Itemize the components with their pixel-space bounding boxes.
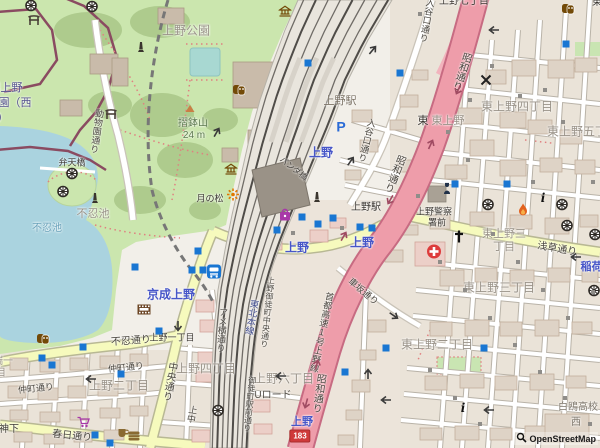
map-label-kurumazaka-dori: 車坂通り [346,277,380,307]
oneway-arrow-icon [363,39,386,61]
entrance-dot [591,180,595,184]
monument-icon [89,191,101,209]
entrance-dot [438,260,442,264]
subway-entrance-icon [397,70,404,77]
map-label-nakacho-dori-1: 仲町通り [108,361,145,374]
entrance-dot [563,396,567,400]
dharma-wheel-icon [25,0,38,17]
entrance-dot [513,343,517,347]
subway-entrance-icon [330,215,337,222]
map-label-ueno-police-l1: 上野警察 [416,207,452,216]
entrance-dot [561,120,565,124]
expressway-arrow-icon [378,189,401,210]
subway-entrance-icon [132,264,139,271]
map-label-ueno-okachimachi-chuo-dori: 上野御徒町中央通り [259,276,275,348]
oneway-arrow-icon [273,366,287,384]
map-label-inaricho: 稲荷町 [581,262,600,274]
subway-entrance-icon [39,355,46,362]
oneway-arrow-icon [481,400,495,418]
viewpoint-icon [227,188,240,206]
entrance-dot [468,98,472,102]
peak-icon [185,100,196,118]
oneway-arrow-icon [378,390,392,408]
map-label-iriyaguchi-dori-1: 入谷口通り [356,117,376,163]
subway-entrance-icon [357,224,364,231]
map-canvas[interactable]: 上野公園摺鉢山24 m月の松弁天橋不忍池不忍池賜上野園（西）動物園通り上野駅上野… [0,0,600,448]
map-label-tenjinshita: 天神下 [0,425,19,436]
map-label-panda-bashi: パンダ橋 [278,156,309,183]
entrance-dot [418,12,422,16]
map-label-corner-higashi: 東 [592,0,600,8]
oneway-arrow-icon [568,247,582,265]
subway-entrance-icon [195,248,202,255]
subway-entrance-icon [315,221,322,228]
map-label-ueno-exit: 上野 [291,417,313,429]
entrance-dot [531,180,535,184]
subway-entrance-icon [118,371,125,378]
entrance-dot [453,396,457,400]
entrance-dot [541,288,545,292]
entrance-dot [543,88,547,92]
map-label-nakacho-dori-2: 仲町通り [18,382,55,395]
subway-entrance-icon [305,60,312,67]
map-label-ueno-2: 上野二丁目 [89,380,149,393]
map-label-higashi-ueno-4: 東上野四丁目 [481,101,553,114]
subway-entrance-icon [481,345,488,352]
dharma-wheel-icon [482,198,495,216]
bus-station-icon [207,264,222,284]
fast-food-icon [128,428,141,446]
map-label-higashi-ueno: 東上野 [432,116,465,128]
entrance-dot [566,316,570,320]
map-features-layer: 上野公園摺鉢山24 m月の松弁天橋不忍池不忍池賜上野園（西）動物園通り上野駅上野… [0,0,600,448]
subway-entrance-icon [299,214,306,221]
entrance-dot [466,158,470,162]
dharma-wheel-icon [66,167,79,185]
svg-text:i: i [541,191,546,204]
entrance-dot [488,316,492,320]
entrance-dot [291,231,295,235]
entrance-dot [538,370,542,374]
map-label-shinobazu-pond-water: 不忍池 [32,224,62,235]
monument-icon [135,40,147,58]
information-icon: i [539,191,547,209]
statue-icon [311,190,323,208]
entrance-dot [446,130,450,134]
dharma-wheel-icon [556,198,569,216]
map-label-ueno-sta-building: 上野駅 [324,96,357,108]
map-label-ueno-jr: 上野 [309,147,333,160]
map-label-uechun: 上中 [185,404,197,423]
map-label-hakuo-hs: 白鴎高校 [558,403,598,414]
parking-icon: P [335,119,347,139]
map-label-zoo-name-line1: 賜上野 [0,83,23,95]
map-label-zoo-name-line3: ） [0,113,9,125]
subway-entrance-icon [452,181,459,188]
entrance-dot [516,260,520,264]
oneway-arrow-icon [83,369,97,387]
subway-entrance-icon [92,432,99,439]
map-label-tohoku-main-line: 東北本線 [243,298,259,335]
entrance-dot [463,288,467,292]
subway-entrance-icon [200,267,207,274]
map-label-higashi-ueno-3-l1: 東上野三 [482,229,526,241]
dharma-wheel-icon [212,404,225,422]
map-label-iriyaguchi-dori-2: 入谷口通り [417,0,434,43]
oneway-arrow-icon [486,20,500,38]
svg-text:i: i [461,401,466,414]
map-label-ueno-police-l2: 署前 [428,218,446,227]
map-label-dobutsuen-dori: 動物園通り [88,108,104,154]
museum-icon [279,4,292,22]
osm-attribution-text: OpenStreetMap [529,434,596,444]
oneway-arrow-icon [168,320,186,334]
entrance-dot [478,422,482,426]
map-label-ikenohata-frag1: 端一 [0,357,13,368]
svg-text:P: P [336,119,345,134]
dharma-wheel-icon [561,219,574,237]
entrance-dot [491,232,495,236]
information-icon: i [459,401,467,419]
subway-entrance-icon [342,369,349,376]
torii-icon [105,107,118,125]
oneway-arrow-icon [207,121,230,142]
church-cross-icon [453,230,465,249]
map-label-shinobazu-dori: 不忍通り [111,335,152,348]
map-label-higashi-fragment: 東 [418,116,429,128]
map-label-suribachiyama: 摺鉢山 [178,119,208,130]
map-label-ueno-1-junction: 上野一丁目 [149,333,194,342]
magnifier-icon [516,432,527,445]
supermarket-cart-icon [77,415,91,433]
theatre-masks-icon [561,2,575,20]
map-label-ueno-4: 上野四丁目 [176,363,236,376]
map-label-higashi-ueno-3-l2: 丁目 [493,242,515,254]
map-label-ueno-7: 上野七丁目 [439,0,489,7]
oneway-arrow-icon [360,366,378,380]
dharma-wheel-icon [57,185,70,203]
subway-entrance-icon [156,328,163,335]
map-label-u-road: Uロード [254,391,291,402]
map-label-keisei-ueno: 京成上野 [147,289,195,302]
map-label-ikenohata-frag2: 目 [0,369,6,380]
entrance-dot [416,194,420,198]
map-label-higashi-ueno-3: 東上野三丁目 [463,282,535,295]
subway-entrance-icon [49,362,56,369]
subway-entrance-icon [107,440,114,447]
dharma-wheel-icon [589,228,600,246]
map-label-higashi-ueno-5: 東上野五丁目 [547,126,600,139]
map-label-ueno-eki-junction: 上野駅 [351,203,381,214]
entrance-dot [428,368,432,372]
theatre-masks-icon [232,83,246,101]
dharma-wheel-icon [86,0,99,18]
map-label-shinobazu-pond-place: 不忍池 [77,209,110,221]
police-icon [442,182,452,200]
map-label-zoo-name-line2: 園（西 [0,98,32,110]
entrance-dot [518,94,522,98]
fire-station-icon [517,203,529,221]
map-label-chuo-dori: 中央通り [159,360,176,401]
map-label-showa-dori-2: 昭和通り [381,152,406,193]
cafe-icon [118,425,129,443]
expressway-arrow-icon [446,80,468,100]
subway-entrance-icon [504,181,511,188]
map-label-higashi-ueno-2: 東上野二丁目 [401,339,473,352]
map-label-ueno-park: 上野公園 [162,25,210,38]
entrance-dot [591,290,595,294]
map-label-ameyoko-dori: アメ横通り [215,307,228,353]
subway-entrance-icon [189,267,196,274]
museum-icon [225,162,238,180]
map-label-suribachiyama-elev: 24 m [183,131,205,142]
expressway-arrow-icon [421,134,443,154]
theatre-masks-icon [36,332,50,350]
cinema-icon [137,302,151,320]
route-shield-183: 183 [289,430,310,443]
entrance-dot [490,64,494,68]
level-crossing-icon [480,73,492,91]
subway-entrance-icon [369,225,376,232]
shop-bag-icon [279,208,292,227]
entrance-dot [588,422,592,426]
subway-entrance-icon [80,344,87,351]
map-label-hakuo-hs-west: 西 [571,418,581,429]
map-label-ueno-metro-west: 上野 [285,242,309,255]
oneway-arrow-icon [383,306,405,329]
map-label-okachimachi-ekimae-dori: 御徒町駅前通り [242,376,256,433]
osm-attribution[interactable]: OpenStreetMap [514,432,598,445]
subway-entrance-icon [274,227,281,234]
subway-entrance-icon [563,41,570,48]
subway-entrance-icon [383,345,390,352]
map-label-tsuki-no-matsu: 月の松 [196,194,223,203]
